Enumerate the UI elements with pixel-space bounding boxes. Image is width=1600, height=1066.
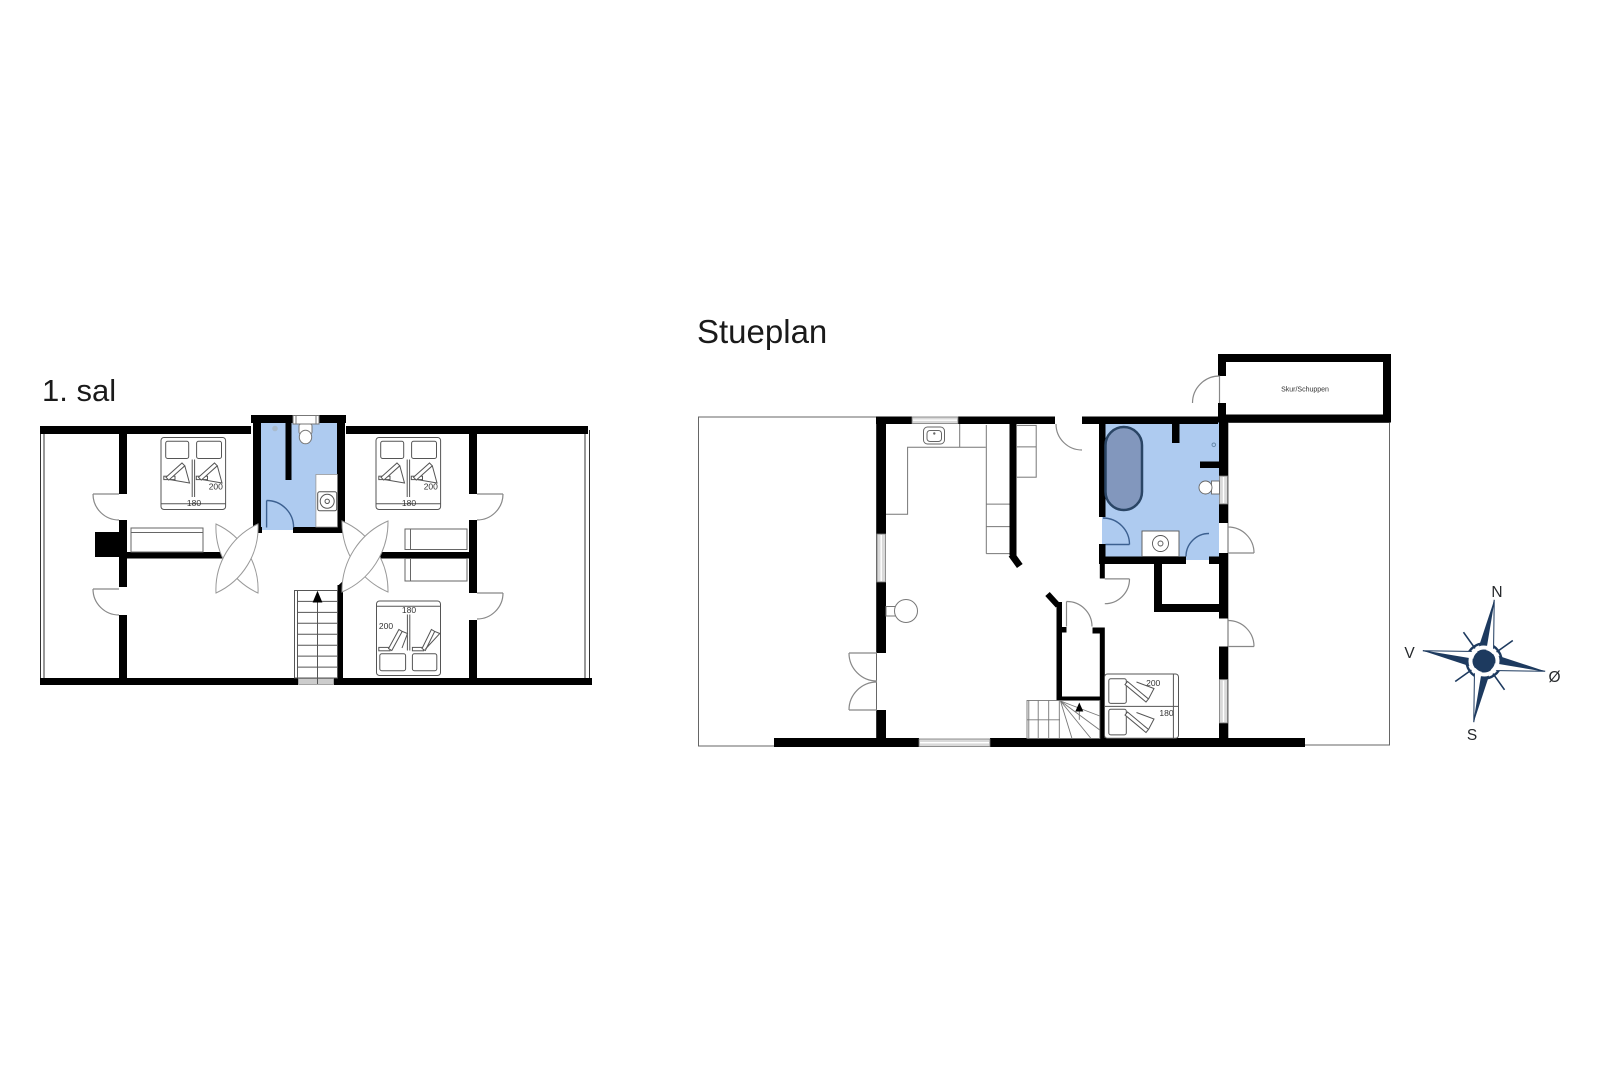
svg-text:Ø: Ø (1548, 669, 1560, 686)
svg-text:S: S (1467, 727, 1477, 744)
svg-text:180: 180 (402, 605, 416, 615)
svg-text:200: 200 (209, 482, 223, 492)
svg-text:V: V (1404, 645, 1415, 662)
svg-text:Stueplan: Stueplan (697, 313, 827, 350)
svg-text:200: 200 (379, 621, 393, 631)
svg-text:200: 200 (1146, 678, 1160, 688)
svg-text:180: 180 (187, 498, 201, 508)
svg-text:180: 180 (1159, 708, 1173, 718)
svg-text:N: N (1491, 584, 1502, 601)
svg-text:Skur/Schuppen: Skur/Schuppen (1281, 387, 1329, 394)
svg-text:1. sal: 1. sal (42, 373, 116, 408)
